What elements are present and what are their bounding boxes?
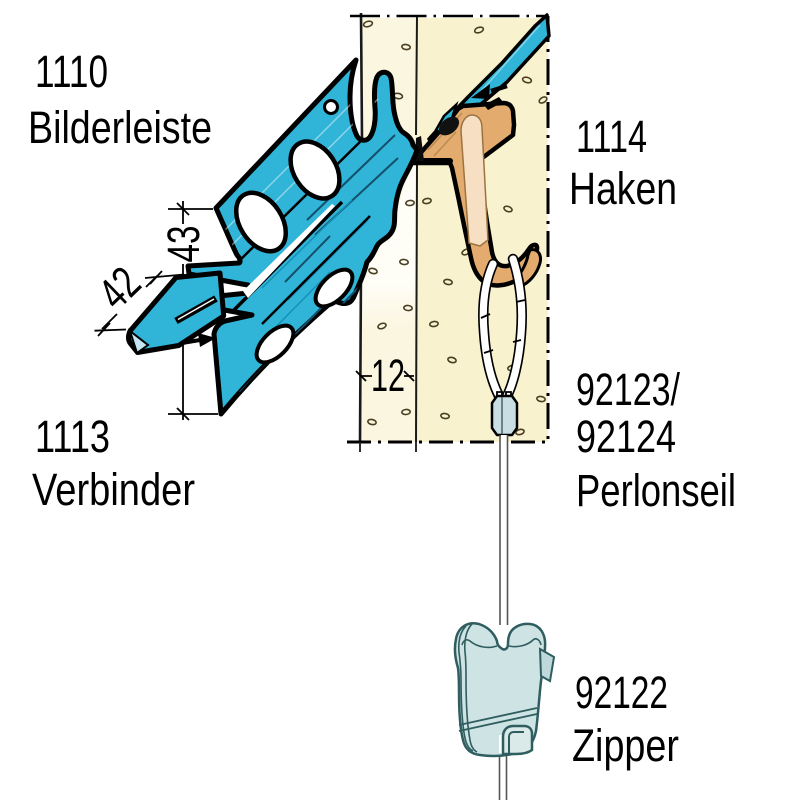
svg-text:Perlonseil: Perlonseil	[576, 465, 736, 516]
svg-text:12: 12	[371, 350, 405, 401]
svg-text:Haken: Haken	[569, 163, 677, 214]
svg-text:1113: 1113	[35, 411, 110, 462]
svg-text:Bilderleiste: Bilderleiste	[28, 102, 212, 153]
svg-text:Verbinder: Verbinder	[32, 464, 195, 515]
svg-text:92123/: 92123/	[576, 364, 680, 415]
svg-text:92122: 92122	[575, 667, 668, 718]
svg-text:1114: 1114	[576, 111, 647, 162]
svg-text:Zipper: Zipper	[572, 720, 679, 771]
svg-text:92124: 92124	[576, 411, 676, 462]
svg-text:1110: 1110	[35, 46, 108, 97]
svg-text:43: 43	[158, 226, 209, 263]
